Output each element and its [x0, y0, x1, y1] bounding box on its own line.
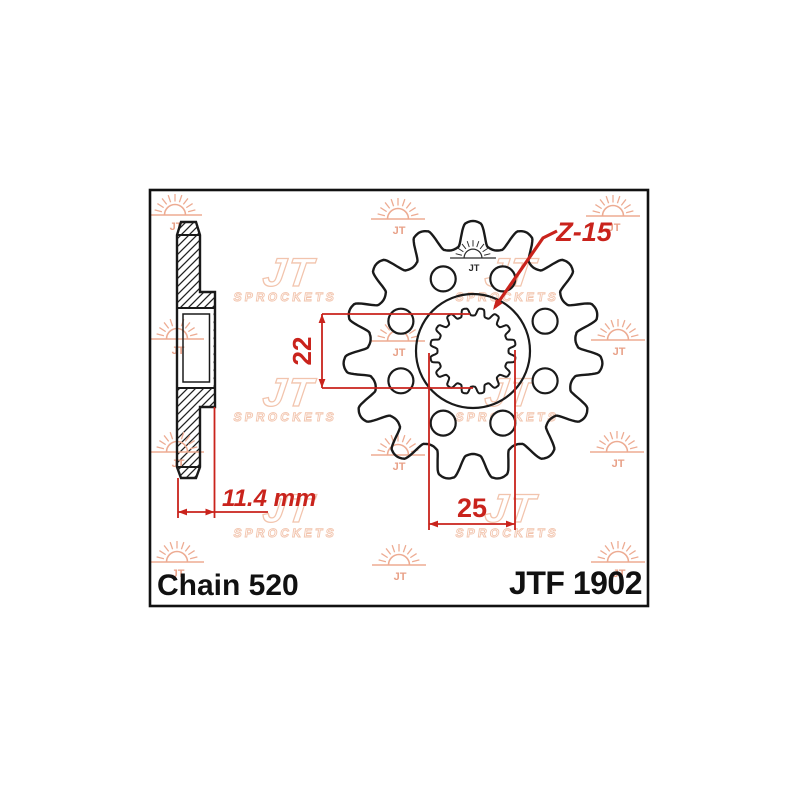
sun-ray: [628, 441, 634, 445]
lightening-hole: [388, 309, 413, 334]
sun-jt-mark: JT: [393, 347, 406, 359]
sun-ray: [407, 548, 412, 554]
jt-logo-letters: JT: [260, 370, 318, 415]
sun-ray: [411, 214, 418, 216]
sun-ray: [598, 557, 605, 559]
lightening-hole: [388, 368, 413, 393]
sun-ray: [621, 199, 626, 205]
sun-ray: [605, 323, 610, 329]
sun-ray: [626, 211, 633, 213]
sun-ray: [385, 438, 390, 444]
sun-ray: [162, 198, 167, 204]
sun-ray: [181, 542, 183, 549]
sun-ray: [170, 432, 172, 439]
sun-ray: [381, 554, 387, 558]
dimension-arrow: [206, 509, 215, 516]
sun-ray: [621, 432, 623, 439]
jt-logo-subtext: SPROCKETS: [455, 290, 560, 304]
sun-disc: [167, 552, 188, 563]
sun-ray: [385, 202, 390, 208]
sun-ray: [380, 444, 386, 448]
jt-logo-letters: JT: [260, 250, 318, 295]
sun-ray: [410, 554, 416, 558]
sun-jt-mark: JT: [612, 458, 625, 470]
jt-sun-logo-icon: JT: [372, 544, 426, 583]
sun-ray: [624, 205, 630, 209]
sun-ray: [379, 560, 386, 562]
sun-jt-mark: JT: [393, 461, 406, 473]
sun-ray: [595, 205, 601, 209]
sun-ray: [164, 435, 169, 441]
sun-ray: [164, 322, 169, 328]
sun-ray: [409, 208, 415, 212]
sun-ray: [159, 328, 165, 332]
dim-bore-major-label: 25: [457, 493, 487, 523]
sun-ray: [157, 334, 164, 336]
drawing-canvas: JTSPROCKETSJTSPROCKETSJTSPROCKETSJTSPROC…: [0, 0, 800, 800]
sun-ray: [622, 542, 624, 549]
sun-ray: [378, 214, 385, 216]
sun-ray: [188, 210, 195, 212]
part-number-label: JTF 1902: [509, 565, 642, 601]
sun-ray: [188, 551, 194, 555]
sun-ray: [170, 319, 172, 326]
sun-ray: [593, 211, 600, 213]
lightening-hole: [490, 411, 515, 436]
sun-disc: [608, 330, 629, 340]
sun-ray: [631, 335, 638, 337]
sun-jt-mark: JT: [613, 346, 626, 358]
sun-ray: [155, 210, 162, 212]
sun-ray: [164, 545, 169, 551]
jt-sun-logo-icon: JT: [590, 431, 644, 470]
sun-ray: [170, 542, 172, 549]
jt-sprockets-logo: JTSPROCKETS: [233, 250, 344, 304]
sun-disc: [607, 442, 628, 453]
sun-ray: [378, 450, 385, 452]
sun-ray: [630, 447, 637, 449]
lightening-hole: [533, 368, 558, 393]
sun-ray: [157, 557, 164, 559]
sun-ray: [185, 545, 190, 551]
sun-ray: [625, 435, 630, 441]
jt-logo-subtext: SPROCKETS: [455, 526, 560, 540]
sun-ray: [186, 204, 192, 208]
jt-sun-logo-icon: JT: [591, 319, 645, 358]
sun-ray: [629, 551, 635, 555]
teeth-count-label: Z-15: [555, 217, 613, 247]
sun-ray: [391, 199, 393, 206]
sun-ray: [597, 447, 604, 449]
jt-sprockets-logo: JTSPROCKETS: [233, 370, 344, 424]
sun-disc: [608, 552, 629, 563]
sun-ray: [626, 545, 631, 551]
sun-ray: [406, 202, 411, 208]
sun-ray: [610, 432, 612, 439]
sun-ray: [600, 551, 606, 555]
sun-ray: [179, 195, 181, 202]
lightening-hole: [533, 309, 558, 334]
jt-logo-subtext: SPROCKETS: [233, 290, 338, 304]
sun-ray: [626, 323, 631, 329]
sprocket-technical-drawing: JTSPROCKETSJTSPROCKETSJTSPROCKETSJTSPROC…: [0, 0, 800, 800]
lightening-hole: [490, 266, 515, 291]
sun-jt-mark: JT: [394, 571, 407, 583]
dimension-arrow: [178, 509, 187, 516]
sun-disc: [388, 209, 409, 220]
fill-layer: [177, 221, 602, 478]
sun-disc: [389, 555, 410, 566]
dim-bore-minor-label: 22: [287, 337, 317, 366]
sun-disc: [603, 206, 624, 217]
jt-logo-subtext: SPROCKETS: [233, 410, 338, 424]
sun-ray: [159, 441, 165, 445]
sun-ray: [617, 196, 619, 203]
sun-ray: [157, 204, 163, 208]
sun-ray: [403, 545, 405, 552]
dimension-arrow: [319, 314, 326, 323]
dimension-arrow: [319, 379, 326, 388]
sun-ray: [611, 320, 613, 327]
sun-ray: [159, 551, 165, 555]
sun-ray: [631, 557, 638, 559]
jt-sun-logo-icon: JT: [371, 198, 425, 237]
chain-size-label: Chain 520: [157, 569, 299, 602]
sun-ray: [412, 560, 419, 562]
sun-ray: [157, 447, 164, 449]
sun-ray: [600, 329, 606, 333]
lightening-hole: [431, 411, 456, 436]
sun-ray: [600, 199, 605, 205]
sun-disc: [165, 205, 186, 216]
sun-ray: [168, 195, 170, 202]
sun-ray: [392, 545, 394, 552]
dimension-arrow: [429, 521, 438, 528]
sun-ray: [622, 320, 624, 327]
sun-ray: [380, 208, 386, 212]
sun-ray: [402, 199, 404, 206]
sun-ray: [599, 441, 605, 445]
sun-ray: [604, 435, 609, 441]
sun-ray: [611, 542, 613, 549]
sun-ray: [183, 198, 188, 204]
lightening-hole: [431, 266, 456, 291]
sun-jt-mark: JT: [469, 263, 480, 273]
dim-offset-width-label: 11.4 mm: [222, 485, 316, 512]
sun-ray: [598, 335, 605, 337]
sun-jt-mark: JT: [393, 225, 406, 237]
sun-ray: [605, 545, 610, 551]
sun-ray: [190, 557, 197, 559]
sun-ray: [386, 548, 391, 554]
sun-ray: [629, 329, 635, 333]
sun-ray: [606, 196, 608, 203]
jt-logo-subtext: SPROCKETS: [233, 526, 338, 540]
